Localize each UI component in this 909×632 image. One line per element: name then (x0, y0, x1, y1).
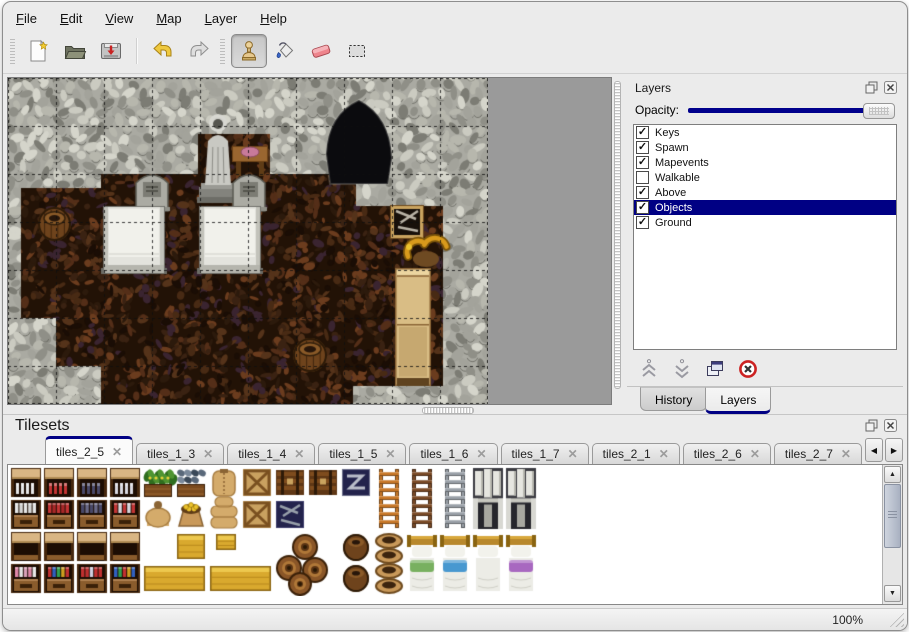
dock-tabs: HistoryLayers (627, 387, 903, 414)
map-canvas[interactable] (8, 78, 488, 404)
layer-visibility-checkbox[interactable]: ✓ (636, 186, 649, 199)
select-tool-icon (344, 38, 370, 64)
layer-row-ground[interactable]: ✓Ground (634, 215, 896, 230)
layer-visibility-checkbox[interactable] (636, 171, 649, 184)
new-file-button[interactable] (21, 34, 57, 68)
tileset-tab-label: tiles_2_7 (785, 447, 833, 461)
right-arrow-icon: ▶ (891, 446, 897, 455)
float-panel-icon[interactable] (865, 81, 879, 95)
zoom-level-label: 100% (832, 613, 863, 627)
tab-close-icon[interactable]: ✕ (568, 447, 578, 461)
scroll-up-button[interactable]: ▲ (884, 466, 901, 483)
menu-item-file[interactable]: File (16, 11, 37, 26)
save-file-button[interactable] (93, 34, 129, 68)
menu-bar: FileEditViewMapLayerHelp (3, 2, 907, 30)
new-file-icon (26, 38, 52, 64)
tileset-tab-label: tiles_2_6 (694, 447, 742, 461)
scroll-down-button[interactable]: ▼ (884, 585, 901, 602)
left-arrow-icon: ◀ (871, 446, 877, 455)
status-bar: 100% (3, 608, 907, 630)
tileset-tab-tiles_2_1[interactable]: tiles_2_1✕ (592, 443, 680, 464)
palette-scroll-thumb[interactable] (884, 484, 901, 548)
stamp-tool-button[interactable] (231, 34, 267, 68)
lower-layer-icon (671, 358, 693, 380)
layer-list[interactable]: ✓Keys✓Spawn✓MapeventsWalkable✓Above✓Obje… (633, 124, 897, 350)
scroll-tabs-right-button[interactable]: ▶ (885, 438, 903, 462)
tileset-tab-tiles_1_6[interactable]: tiles_1_6✕ (409, 443, 497, 464)
opacity-label: Opacity: (635, 103, 679, 117)
layer-label: Keys (655, 127, 679, 139)
layer-row-objects[interactable]: ✓Objects (634, 200, 896, 215)
menu-item-map[interactable]: Map (156, 11, 181, 26)
layer-label: Objects (655, 202, 692, 214)
layer-row-mapevents[interactable]: ✓Mapevents (634, 155, 896, 170)
undo-button[interactable] (145, 34, 181, 68)
tab-close-icon[interactable]: ✕ (841, 447, 851, 461)
map-horizontal-scrollbar[interactable] (7, 406, 612, 414)
tab-close-icon[interactable]: ✕ (203, 447, 213, 461)
down-arrow-icon: ▼ (889, 590, 896, 597)
layer-visibility-checkbox[interactable]: ✓ (636, 126, 649, 139)
menu-item-edit[interactable]: Edit (60, 11, 82, 26)
app-window: FileEditViewMapLayerHelp (2, 1, 908, 631)
layer-label: Above (655, 187, 686, 199)
menu-item-layer[interactable]: Layer (205, 11, 238, 26)
open-file-button[interactable] (57, 34, 93, 68)
tilesets-panel: Tilesets tiles_2_5✕tiles_1_3✕tiles_1_4✕t… (3, 414, 907, 608)
map-editor-area (7, 77, 622, 414)
eraser-tool-icon (308, 38, 334, 64)
tileset-tab-label: tiles_1_6 (420, 447, 468, 461)
toolbar-drag-handle[interactable] (220, 38, 225, 64)
opacity-slider[interactable] (688, 102, 895, 118)
tileset-tab-tiles_1_4[interactable]: tiles_1_4✕ (227, 443, 315, 464)
fill-tool-button[interactable] (267, 34, 303, 68)
tileset-tab-label: tiles_1_3 (147, 447, 195, 461)
tab-close-icon[interactable]: ✕ (112, 445, 122, 459)
close-panel-icon[interactable] (884, 419, 898, 433)
layer-duplicate-button[interactable] (703, 357, 727, 381)
layer-label: Mapevents (655, 157, 709, 169)
layers-panel: Layers Opacity: ✓Keys✓Spawn✓MapeventsWal… (627, 77, 903, 414)
tileset-tab-label: tiles_1_4 (238, 447, 286, 461)
tab-close-icon[interactable]: ✕ (385, 447, 395, 461)
layer-visibility-checkbox[interactable]: ✓ (636, 141, 649, 154)
layer-delete-button[interactable] (736, 357, 760, 381)
tileset-tab-tiles_2_5[interactable]: tiles_2_5✕ (45, 436, 133, 464)
tab-close-icon[interactable]: ✕ (294, 447, 304, 461)
layer-actions (627, 352, 903, 387)
open-folder-icon (62, 38, 88, 64)
tileset-tab-label: tiles_2_5 (56, 445, 104, 459)
duplicate-layer-icon (704, 358, 726, 380)
layer-visibility-checkbox[interactable]: ✓ (636, 216, 649, 229)
fill-tool-icon (272, 38, 298, 64)
opacity-slider-handle[interactable] (863, 103, 895, 119)
close-panel-icon[interactable] (884, 81, 898, 95)
menu-item-help[interactable]: Help (260, 11, 287, 26)
layers-panel-header: Layers (627, 77, 903, 98)
dock-tab-history[interactable]: History (640, 387, 707, 411)
layer-label: Spawn (655, 142, 689, 154)
palette-vertical-scrollbar[interactable]: ▲ ▼ (882, 465, 902, 604)
redo-icon (186, 38, 212, 64)
palette-scroll-track[interactable] (884, 549, 901, 585)
toolbar (3, 30, 907, 74)
tileset-tab-tiles_2_7[interactable]: tiles_2_7✕ (774, 443, 862, 464)
select-tool-button[interactable] (339, 34, 375, 68)
toolbar-drag-handle[interactable] (10, 38, 15, 64)
tileset-tabrow: tiles_2_5✕tiles_1_3✕tiles_1_4✕tiles_1_5✕… (7, 436, 903, 464)
tile-palette-canvas[interactable] (9, 466, 539, 596)
toolbar-separator (136, 38, 138, 64)
layer-row-spawn[interactable]: ✓Spawn (634, 140, 896, 155)
eraser-tool-button[interactable] (303, 34, 339, 68)
save-icon (98, 38, 124, 64)
tileset-tab-tiles_1_7[interactable]: tiles_1_7✕ (501, 443, 589, 464)
tileset-tabs: tiles_2_5✕tiles_1_3✕tiles_1_4✕tiles_1_5✕… (7, 436, 865, 464)
redo-button[interactable] (181, 34, 217, 68)
undo-icon (150, 38, 176, 64)
layer-visibility-checkbox[interactable]: ✓ (636, 156, 649, 169)
layer-lower-button[interactable] (670, 357, 694, 381)
layer-row-keys[interactable]: ✓Keys (634, 125, 896, 140)
layer-visibility-checkbox[interactable]: ✓ (636, 201, 649, 214)
tab-close-icon[interactable]: ✕ (659, 447, 669, 461)
layers-panel-title: Layers (635, 81, 671, 95)
tab-close-icon[interactable]: ✕ (750, 447, 760, 461)
tileset-tab-scroll: ◀ ▶ (865, 438, 903, 464)
layer-raise-button[interactable] (637, 357, 661, 381)
map-hscroll-thumb[interactable] (422, 407, 474, 414)
tileset-tab-label: tiles_1_7 (512, 447, 560, 461)
tileset-tab-tiles_1_5[interactable]: tiles_1_5✕ (318, 443, 406, 464)
dock-tab-layers[interactable]: Layers (705, 387, 771, 414)
tile-palette-area: ▲ ▼ (7, 464, 903, 605)
raise-layer-icon (638, 358, 660, 380)
tileset-tab-label: tiles_1_5 (329, 447, 377, 461)
tileset-tab-tiles_2_6[interactable]: tiles_2_6✕ (683, 443, 771, 464)
map-vscroll-thumb[interactable] (614, 81, 621, 389)
map-vertical-scrollbar[interactable] (613, 77, 622, 403)
layer-row-walkable[interactable]: Walkable (634, 170, 896, 185)
tileset-tab-tiles_1_3[interactable]: tiles_1_3✕ (136, 443, 224, 464)
opacity-row: Opacity: (627, 98, 903, 120)
delete-layer-icon (737, 358, 759, 380)
scroll-tabs-left-button[interactable]: ◀ (865, 438, 883, 462)
layer-label: Ground (655, 217, 692, 229)
tab-close-icon[interactable]: ✕ (476, 447, 486, 461)
menu-item-view[interactable]: View (105, 11, 133, 26)
tilesets-panel-header: Tilesets (7, 415, 903, 436)
layer-label: Walkable (655, 172, 700, 184)
map-viewport[interactable] (7, 77, 612, 405)
stamp-tool-icon (236, 38, 262, 64)
tileset-tab-label: tiles_2_1 (603, 447, 651, 461)
resize-grip-icon[interactable] (889, 612, 904, 627)
tilesets-panel-title: Tilesets (15, 417, 70, 435)
layer-row-above[interactable]: ✓Above (634, 185, 896, 200)
up-arrow-icon: ▲ (889, 471, 896, 478)
float-panel-icon[interactable] (865, 419, 879, 433)
